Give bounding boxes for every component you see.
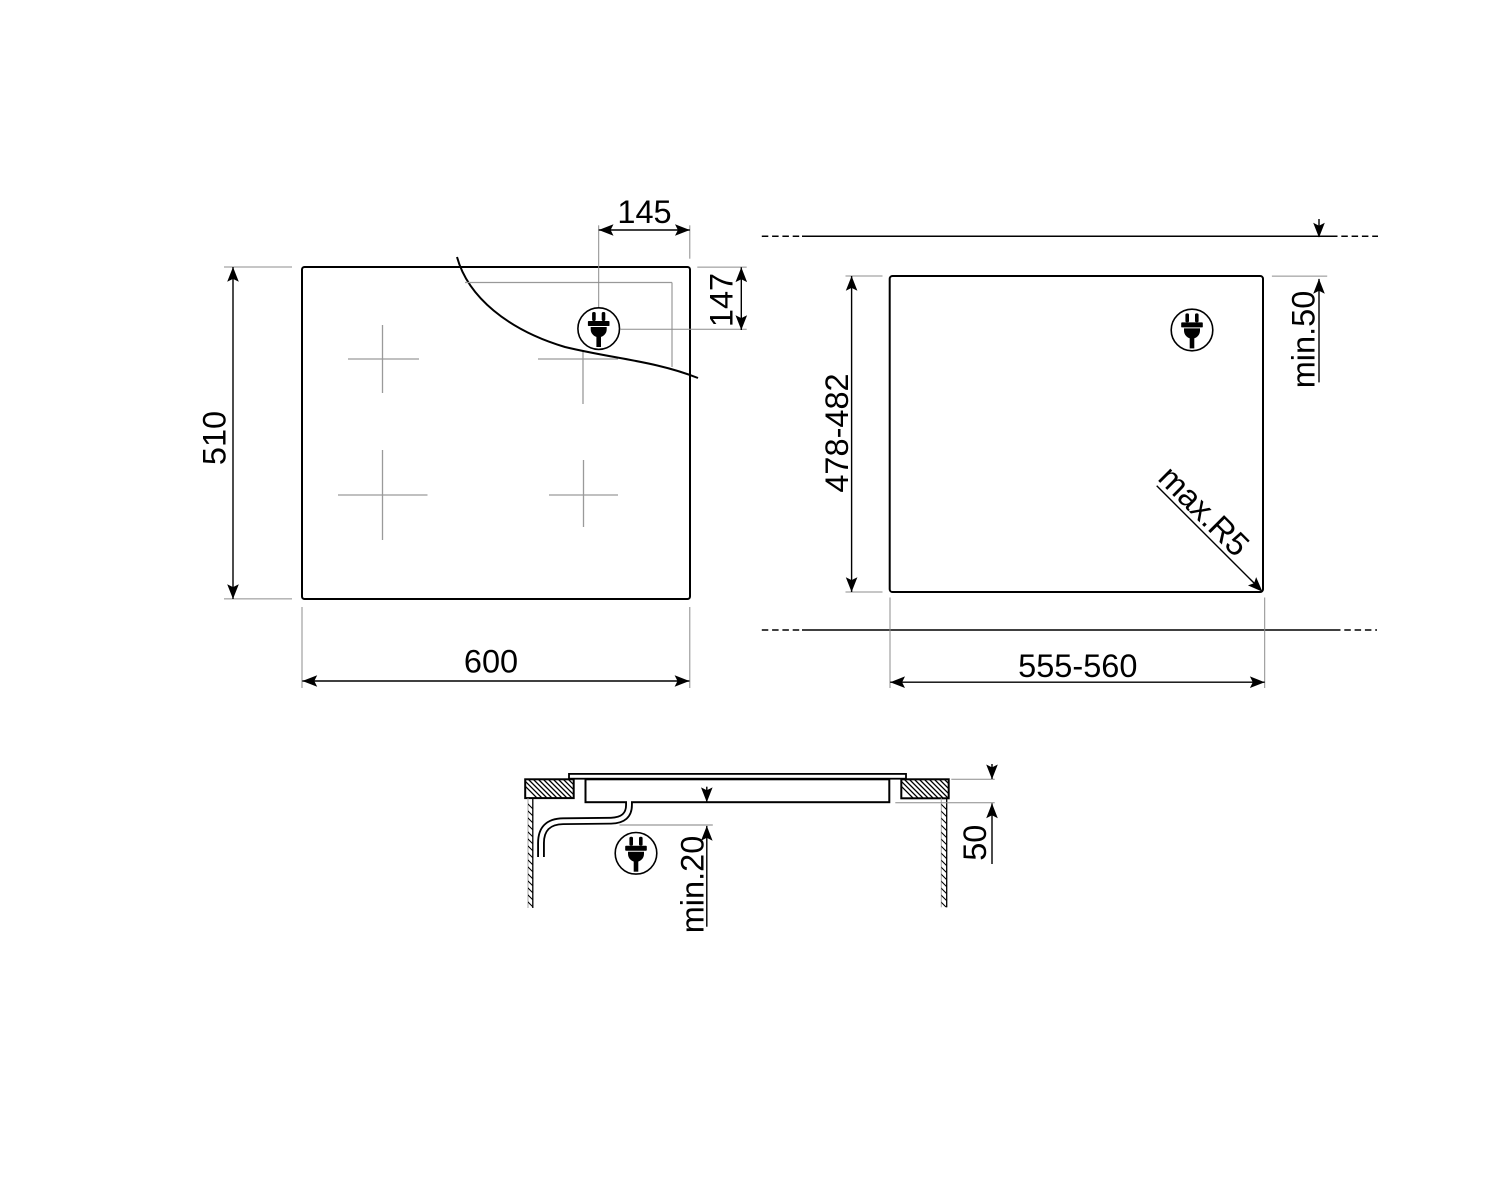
svg-text:555-560: 555-560 (1018, 648, 1137, 684)
svg-text:145: 145 (617, 194, 671, 230)
svg-text:147: 147 (704, 273, 740, 327)
svg-text:478-482: 478-482 (819, 373, 855, 492)
svg-text:min.50: min.50 (1286, 291, 1322, 389)
svg-text:600: 600 (464, 644, 518, 680)
svg-text:510: 510 (197, 411, 233, 465)
svg-text:min.20: min.20 (675, 836, 711, 934)
svg-text:50: 50 (957, 825, 993, 861)
